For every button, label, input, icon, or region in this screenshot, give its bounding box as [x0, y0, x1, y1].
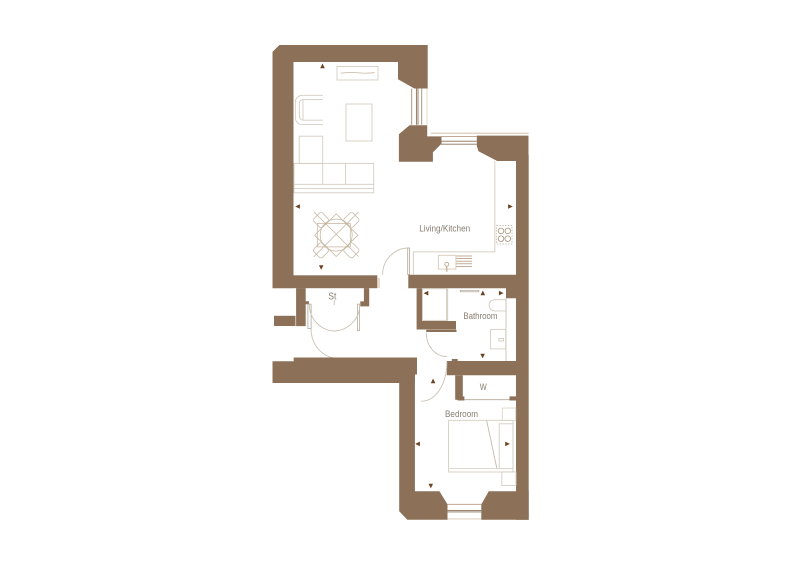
svg-text:St: St: [328, 292, 336, 303]
svg-text:Bedroom: Bedroom: [445, 408, 478, 419]
svg-text:Bathroom: Bathroom: [463, 310, 497, 321]
svg-text:Living/Kitchen: Living/Kitchen: [419, 222, 470, 233]
svg-text:W: W: [480, 382, 487, 392]
